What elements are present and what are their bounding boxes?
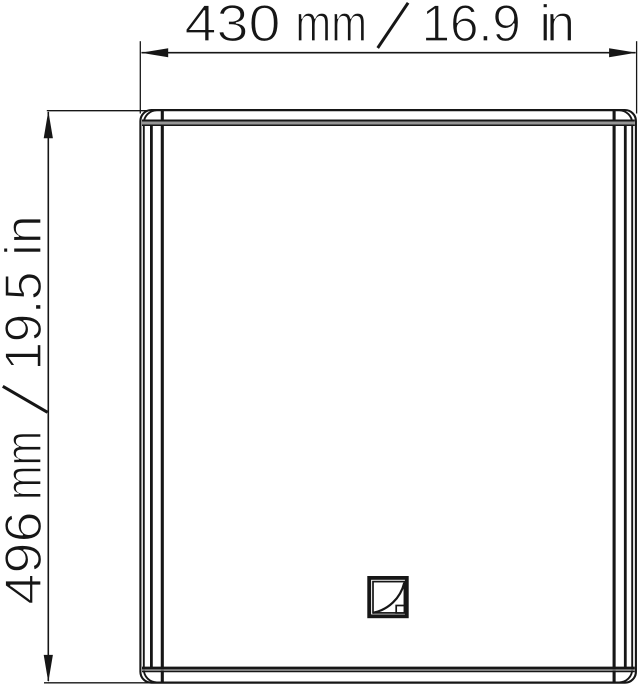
- svg-text:430: 430: [185, 0, 281, 52]
- svg-text:19.5: 19.5: [0, 272, 52, 371]
- svg-text:mm: mm: [295, 0, 367, 52]
- svg-text:16.9: 16.9: [422, 0, 522, 52]
- svg-text:496: 496: [0, 511, 52, 605]
- svg-text:in: in: [540, 0, 576, 52]
- svg-text:mm: mm: [0, 431, 52, 500]
- svg-text:in: in: [0, 215, 52, 256]
